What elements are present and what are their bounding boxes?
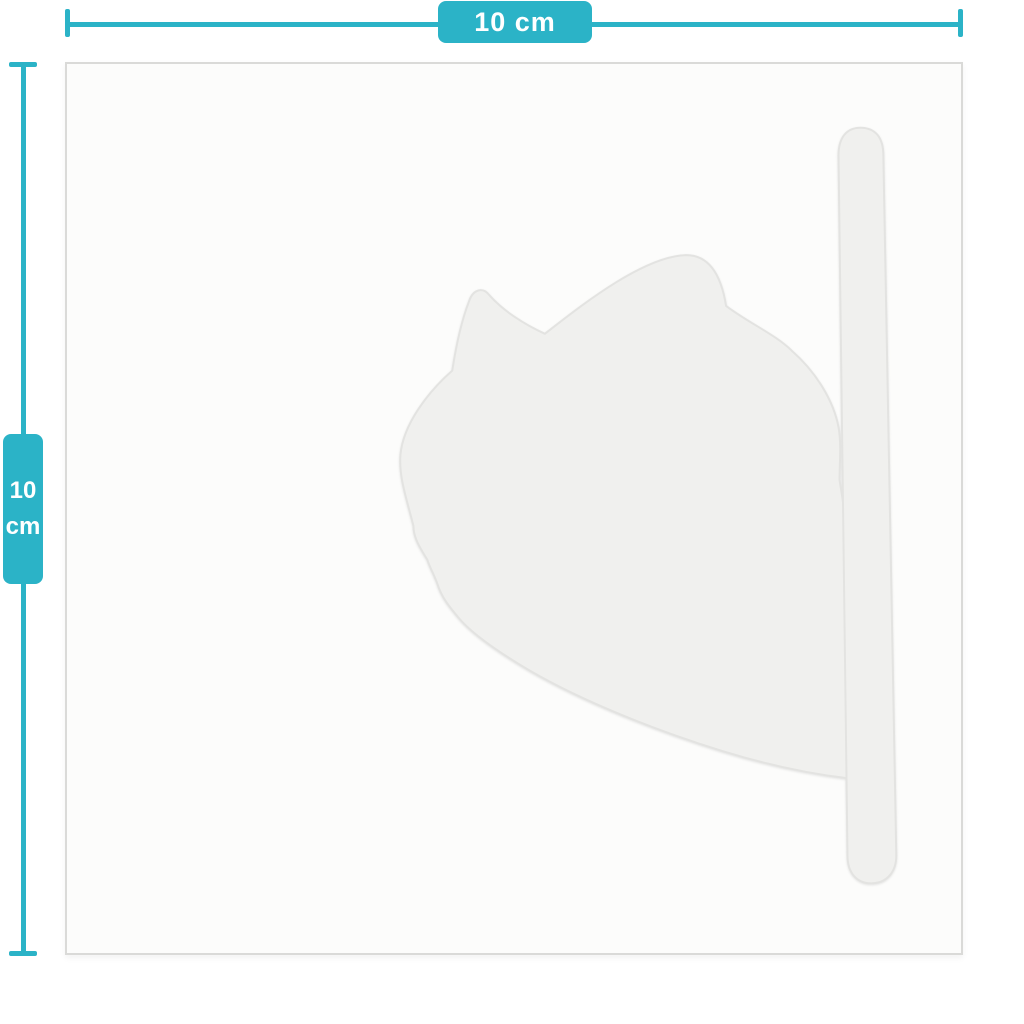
cat-decal-svg (67, 64, 961, 953)
height-dimension-bottom-tick (9, 951, 37, 956)
height-dimension-value: 10 (10, 474, 37, 508)
height-dimension-unit: cm (6, 510, 41, 544)
cat-body-silhouette (400, 255, 851, 779)
cat-tail-silhouette (839, 128, 897, 884)
width-dimension-start-tick (65, 9, 70, 37)
dimension-diagram: 10 cm 10 cm (0, 0, 1024, 1024)
height-dimension-top-tick (9, 62, 37, 67)
height-dimension-badge: 10 cm (3, 434, 43, 584)
width-dimension-badge: 10 cm (438, 1, 592, 43)
width-dimension-label: 10 cm (474, 9, 556, 36)
sticker-sheet (65, 62, 963, 955)
cat-decal-group (400, 128, 896, 884)
width-dimension-end-tick (958, 9, 963, 37)
